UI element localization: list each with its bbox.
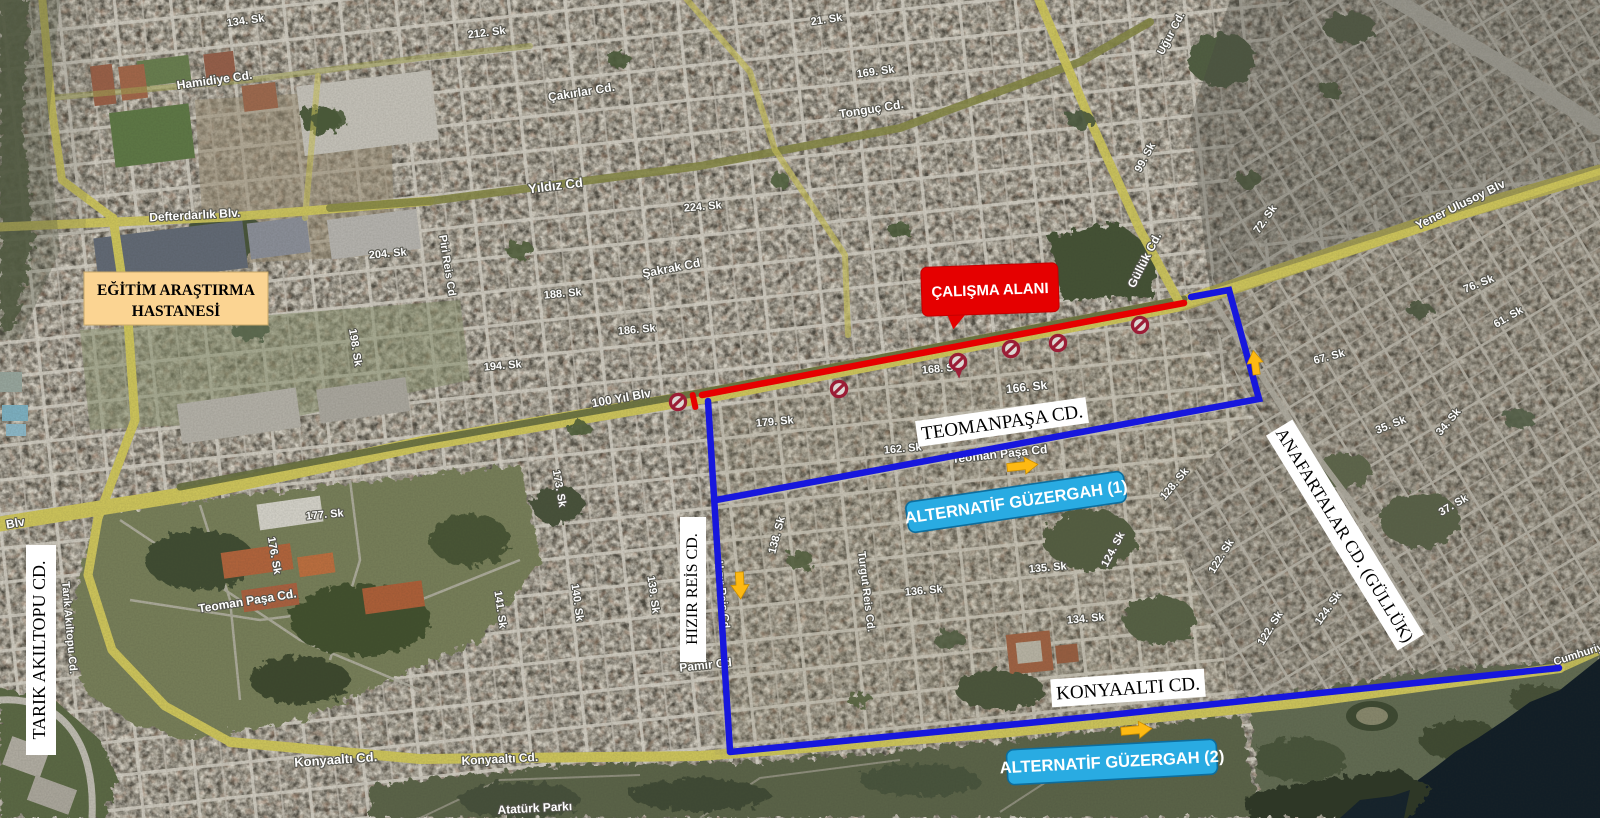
svg-text:TARIK AKILTOPU CD.: TARIK AKILTOPU CD. [29, 560, 49, 739]
svg-text:EĞİTİM ARAŞTIRMA: EĞİTİM ARAŞTIRMA [97, 282, 256, 299]
svg-text:HIZIR REİS CD.: HIZIR REİS CD. [683, 533, 701, 645]
svg-text:HASTANESİ: HASTANESİ [132, 303, 220, 320]
